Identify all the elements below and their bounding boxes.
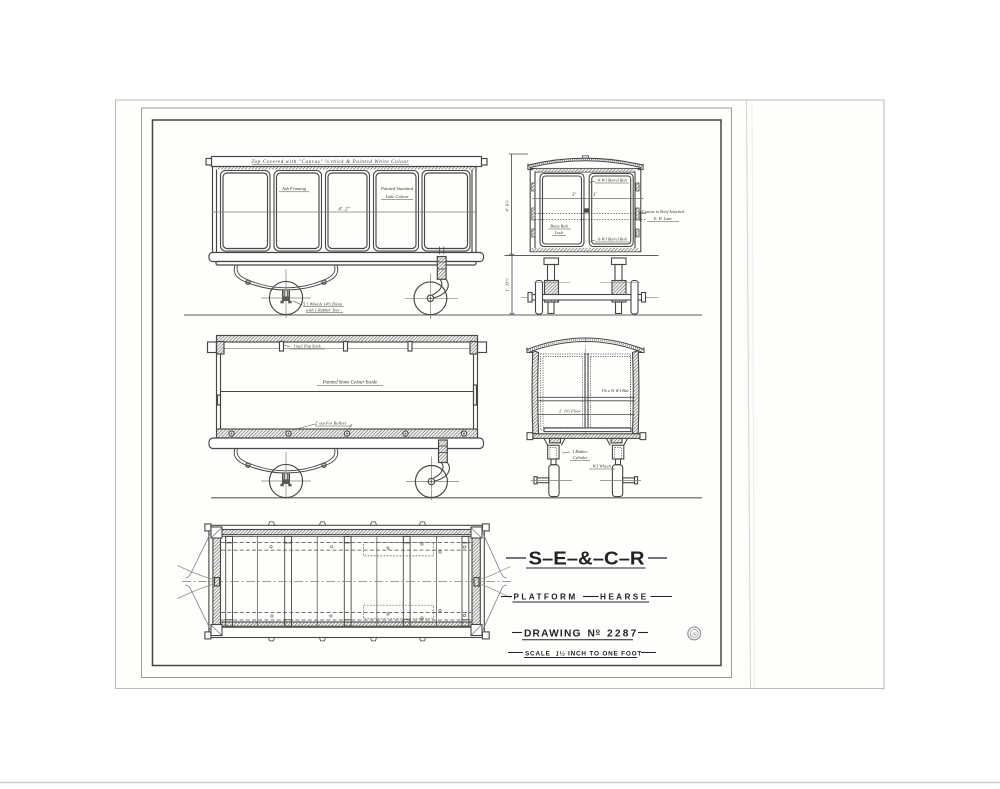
svg-text:1½: 1½ [556, 649, 566, 658]
svg-text:with 1 Rubber Tyre: with 1 Rubber Tyre [306, 308, 340, 313]
svg-text:Lake Colour: Lake Colour [384, 194, 408, 199]
svg-text:N: N [588, 629, 595, 640]
svg-text:1⅜ x ⅜ W.I Bar: 1⅜ x ⅜ W.I Bar [601, 388, 629, 393]
svg-text:1'. 11½: 1'. 11½ [505, 278, 510, 292]
svg-text:PLATFORM: PLATFORM [514, 593, 578, 602]
svg-text:W.I Wheels: W.I Wheels [593, 464, 612, 469]
svg-text:Lock: Lock [554, 230, 563, 235]
svg-text:Canvas to Roof Attached: Canvas to Roof Attached [642, 209, 685, 214]
svg-text:2' out For Rollers: 2' out For Rollers [315, 421, 347, 426]
svg-text:SCALE: SCALE [525, 651, 551, 658]
svg-text:Brass Bolt: Brass Bolt [550, 224, 568, 229]
svg-text:5.1 Wheels 14½ Diam: 5.1 Wheels 14½ Diam [303, 302, 342, 307]
svg-text:Ash Framing: Ash Framing [281, 186, 307, 191]
svg-text:Cylinder: Cylinder [573, 455, 588, 460]
svg-text:4'. 2": 4'. 2" [338, 207, 350, 213]
svg-text:1 Rubber: 1 Rubber [572, 449, 588, 454]
svg-text:⅝ W.I Barrel Bolt: ⅝ W.I Barrel Bolt [597, 178, 627, 183]
svg-text:4'. 6½: 4'. 6½ [505, 200, 510, 212]
svg-text:DRAWING: DRAWING [524, 629, 582, 640]
svg-text:HEARSE: HEARSE [600, 593, 649, 602]
svg-text:S–E–&–C–R: S–E–&–C–R [529, 548, 645, 569]
svg-text:2'. 6½ Floor: 2'. 6½ Floor [559, 409, 581, 414]
svg-text:INCH TO ONE FOOT: INCH TO ONE FOOT [568, 651, 642, 658]
svg-text:2287: 2287 [607, 629, 638, 640]
svg-text:E. H. Lane: E. H. Lane [653, 216, 672, 221]
svg-text:JR: JR [692, 631, 697, 636]
svg-text:Painted Stone Colour Inside: Painted Stone Colour Inside [322, 381, 378, 386]
svg-text:⅝ W.I Barrel Bolt: ⅝ W.I Barrel Bolt [597, 237, 627, 242]
svg-text:Painted Standard: Painted Standard [380, 186, 414, 191]
svg-text:1¼x1 Pop Stick: 1¼x1 Pop Stick [293, 344, 321, 349]
